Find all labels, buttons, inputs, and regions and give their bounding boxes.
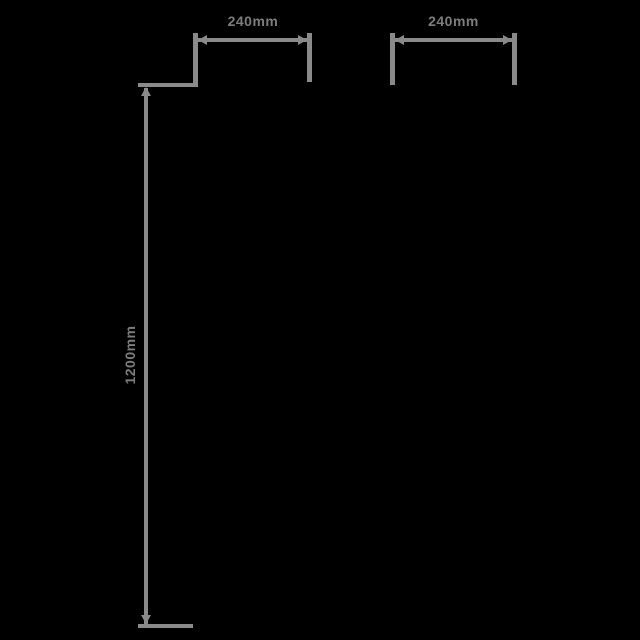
arrowhead-left-icon (198, 35, 207, 45)
extension-line (307, 33, 312, 82)
dimension-line (198, 38, 307, 42)
reference-line-bottom (138, 624, 193, 628)
arrowhead-down-icon (141, 615, 151, 624)
arrowhead-right-icon (298, 35, 307, 45)
dimension-diagram: 240mm 240mm 1200mm (0, 0, 640, 640)
extension-line (512, 33, 517, 85)
dimension-label-top-right: 240mm (395, 13, 512, 29)
dimension-label-height: 1200mm (122, 315, 138, 395)
arrowhead-right-icon (503, 35, 512, 45)
arrowhead-up-icon (141, 87, 151, 96)
dimension-line (144, 88, 148, 624)
dimension-label-top-left: 240mm (198, 13, 308, 29)
dimension-line (395, 38, 512, 42)
arrowhead-left-icon (395, 35, 404, 45)
